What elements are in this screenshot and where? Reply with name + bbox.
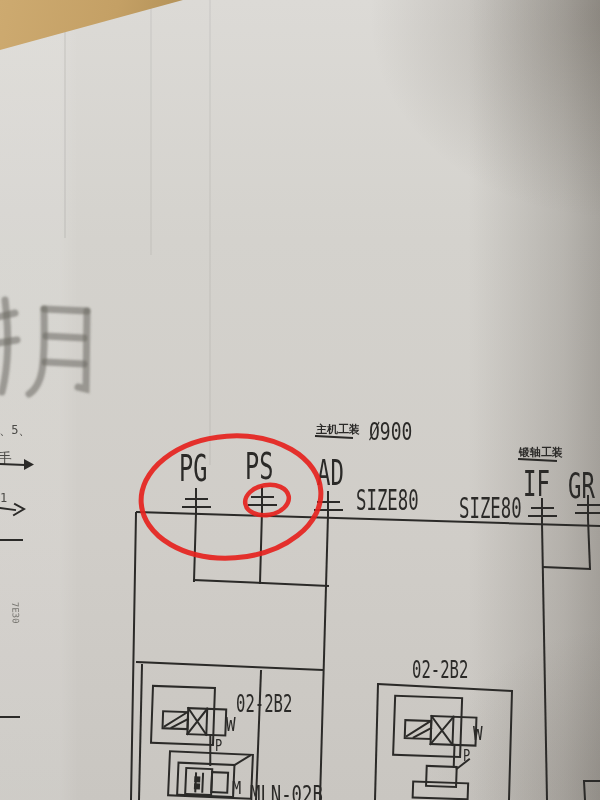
check-dot (195, 784, 199, 788)
valve-x-symbol (187, 708, 207, 735)
faint-char-stroke (46, 336, 84, 338)
right-box-top-edge (378, 684, 512, 691)
faint-char-stroke (78, 311, 87, 389)
margin-arrow-solid (0, 464, 24, 465)
left-valve-motor-m: M (232, 777, 241, 799)
left-valve-model: 02-2B2 (236, 689, 292, 717)
faint-char-stroke (44, 309, 87, 311)
note-above-ad: 主机工装 (316, 423, 360, 436)
port-label-gr: GR (568, 464, 596, 506)
right-valve-spring-w: W (473, 721, 483, 744)
margin-digit: 1 (0, 491, 7, 505)
valve-stub (454, 745, 455, 767)
lower-distribution-line (137, 662, 322, 670)
port-label-pg: PG (179, 446, 207, 489)
port-pg-drop (194, 513, 196, 581)
port-label-if: IF (523, 462, 550, 504)
right-valve-port-p: P (463, 747, 470, 765)
note-underline (316, 436, 352, 438)
check-dot (195, 777, 199, 781)
margin-vertical-code: 7E30 (10, 602, 21, 624)
port-label-ps: PS (245, 444, 273, 487)
faint-char-stroke (29, 309, 44, 394)
valve-divider (452, 717, 453, 745)
margin-numbers: 1、5、 (0, 423, 30, 437)
faint-char-stroke (45, 362, 84, 364)
left-rail-line (131, 513, 136, 800)
bottom-right-box-edge (584, 781, 585, 800)
left-box-left-edge (139, 665, 142, 800)
photo-of-hydraulic-schematic: 1、5、 手 1 7E30 (0, 0, 600, 800)
right-valve-model: 02-2B2 (412, 655, 468, 683)
faint-char-stroke (0, 340, 17, 344)
left-margin-marks: 1、5、 手 1 7E30 (0, 423, 34, 717)
check-bar (202, 774, 203, 792)
left-valve-spring-w: W (226, 712, 236, 735)
size-label-1: SIZE80 (356, 484, 419, 516)
port-ad-drop-line (320, 515, 328, 800)
corner-link (234, 755, 249, 766)
left-valve-port-p: P (215, 737, 222, 755)
port-ps-drop (260, 511, 262, 583)
port-if-drop-line (542, 523, 547, 800)
valve-cell (413, 781, 469, 799)
gr-if-connector (543, 567, 590, 569)
faint-char-stroke (0, 313, 15, 318)
valve-divider (206, 709, 207, 735)
size-label-2: SIZE80 (459, 492, 522, 524)
red-pen-annotation (137, 430, 325, 564)
faint-print-characters (0, 300, 87, 394)
schematic-drawing: 1、5、 手 1 7E30 (0, 0, 600, 800)
valve-stub (209, 735, 211, 765)
note-above-if: 锻轴工装 (518, 446, 563, 459)
red-circle-around-pg-ps (137, 430, 325, 564)
valve-frame (393, 696, 462, 757)
left-valve-code: MLN-02B (250, 781, 323, 800)
diameter-label: Ø900 (369, 417, 412, 445)
valve-x-symbol (431, 716, 454, 745)
margin-arrow-open (0, 508, 15, 510)
right-box-left-edge (375, 684, 378, 800)
note-underline (519, 459, 556, 461)
schematic-labels: PG PS AD IF GR Ø900 SIZE80 SIZE80 主机工装 锻… (179, 417, 596, 800)
valve-cell (211, 772, 228, 793)
margin-arrowhead-solid (24, 459, 34, 470)
right-box-right-edge (509, 691, 512, 800)
